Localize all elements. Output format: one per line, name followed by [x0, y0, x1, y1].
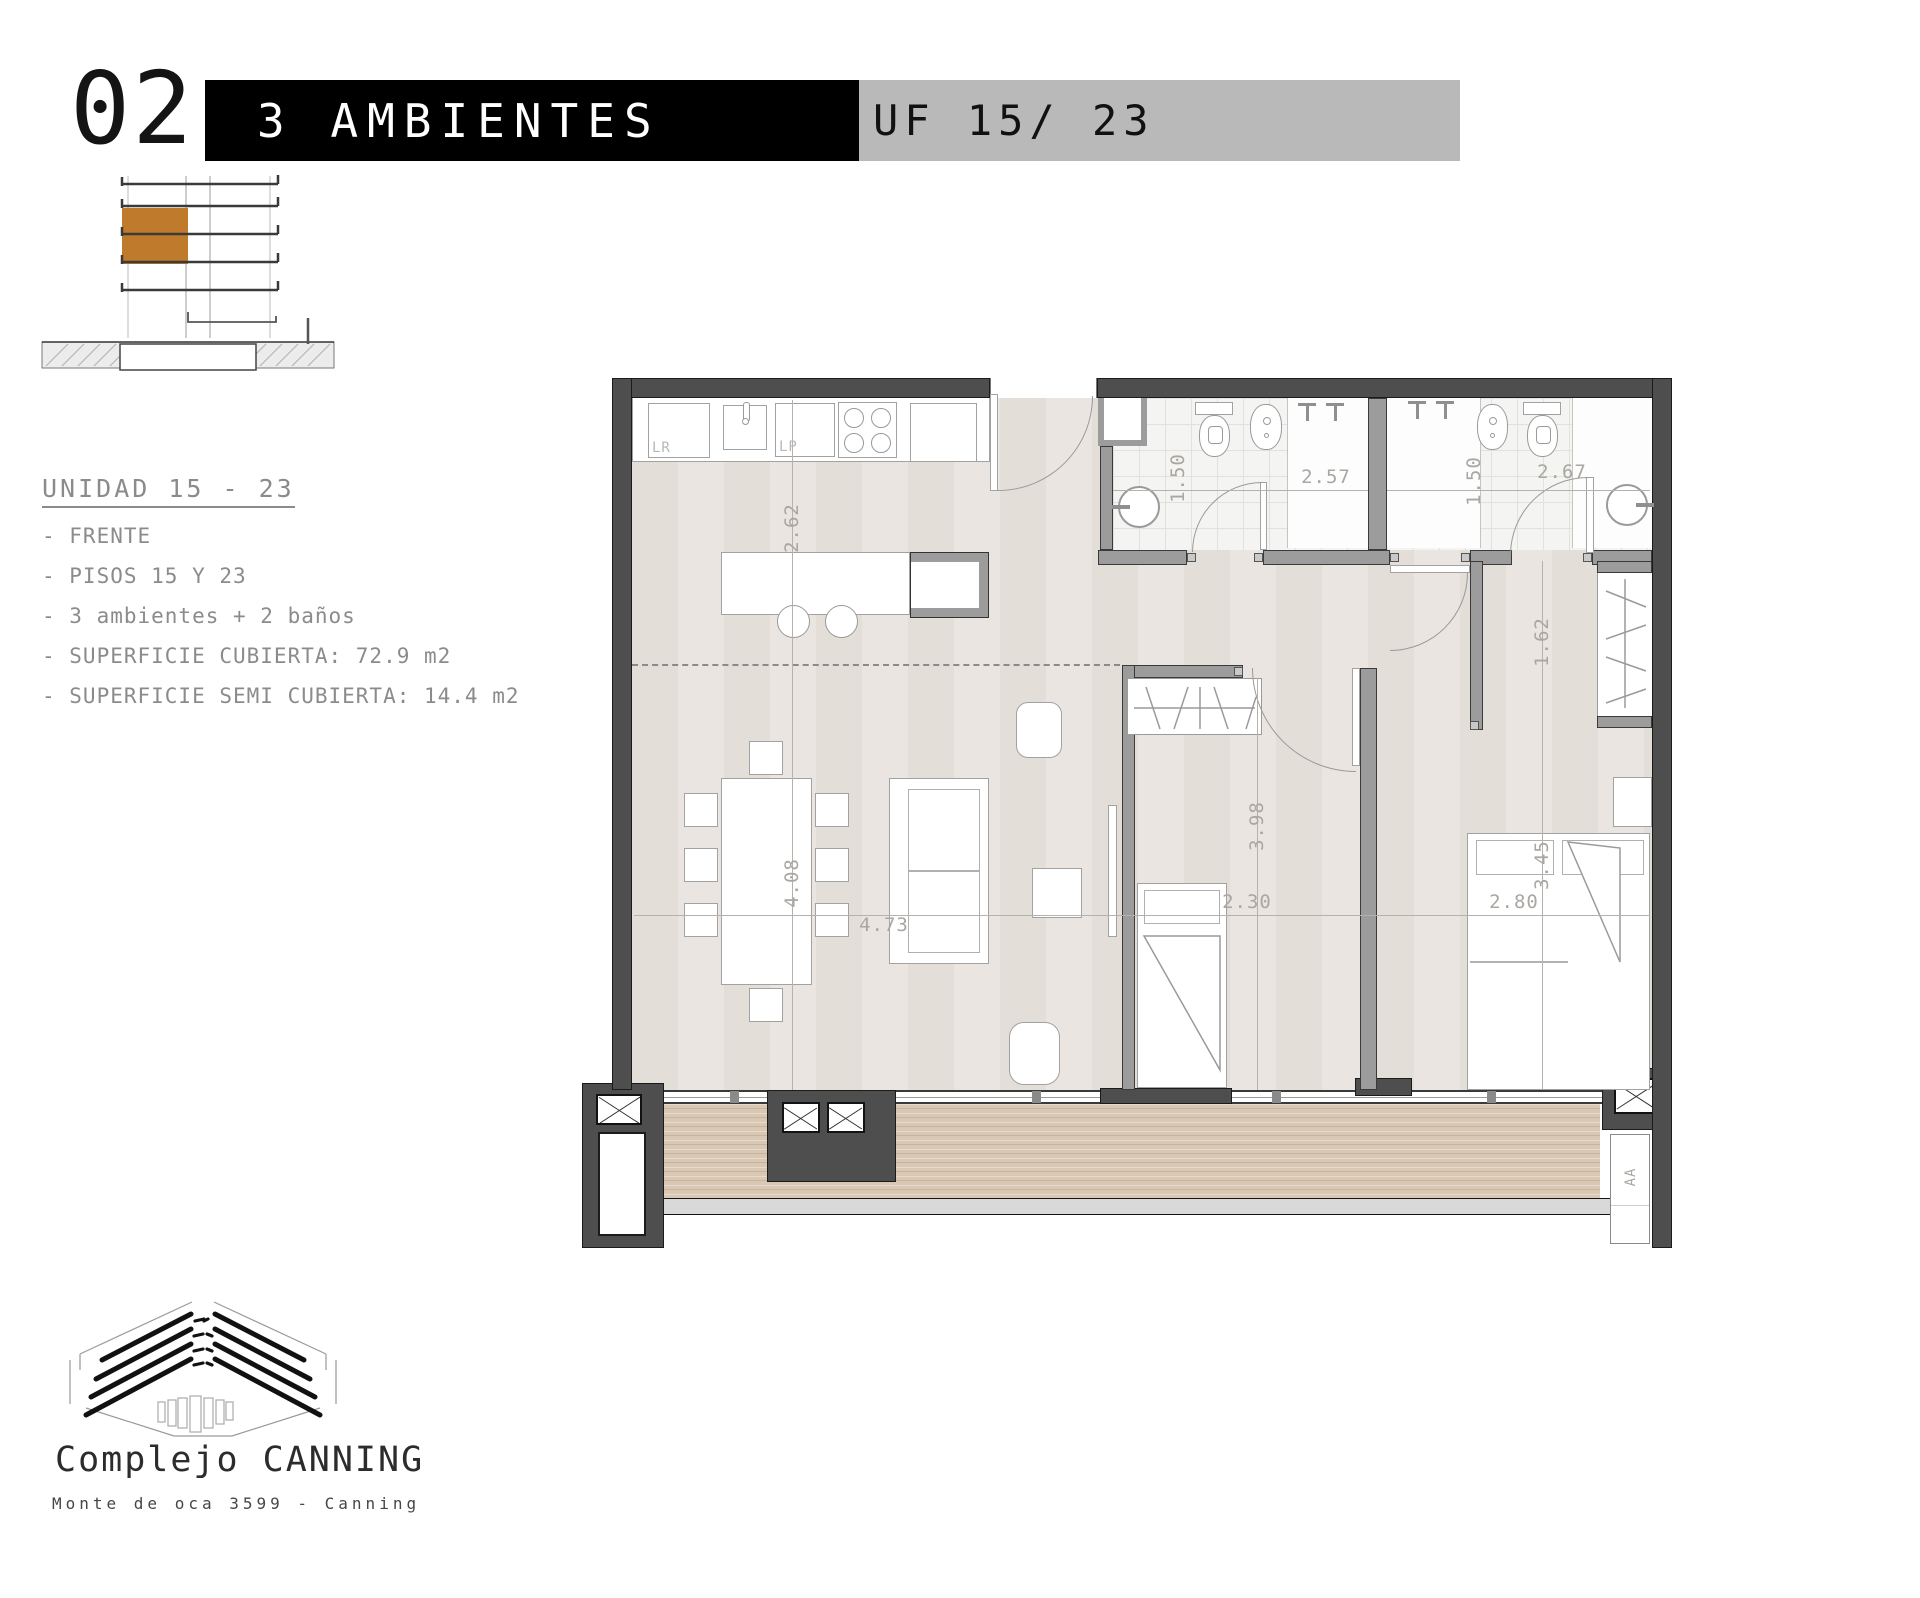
unit-info-line: - SUPERFICIE SEMI CUBIERTA: 14.4 m2 — [42, 684, 520, 708]
chair — [749, 988, 783, 1022]
window-mullion — [730, 1091, 739, 1103]
building-logo-icon — [42, 1290, 352, 1440]
dim-dressing-depth: 1.62 — [1531, 617, 1553, 667]
column-x-icon — [782, 1102, 820, 1133]
island-end-unit — [910, 552, 989, 618]
dim-bedroom2-length: 3.98 — [1246, 801, 1268, 851]
bath-divider-wall — [1368, 398, 1387, 550]
chair — [684, 793, 718, 827]
building-section-drawing — [40, 162, 340, 374]
dim-line-bath2 — [1387, 490, 1650, 491]
window-mullion — [1272, 1091, 1281, 1103]
bath-bottom-wall — [1263, 550, 1390, 565]
chair — [815, 793, 849, 827]
pool-section — [120, 344, 256, 370]
wall-cap — [1470, 721, 1479, 730]
wall-cap — [1234, 667, 1243, 676]
toilet-tank — [1195, 402, 1233, 415]
brand-name: Complejo CANNING — [55, 1440, 424, 1480]
unit-info-line: - PISOS 15 Y 23 — [42, 564, 520, 588]
dim-bath2-depth: 1.50 — [1463, 456, 1485, 506]
dim-line-bath1 — [1113, 490, 1368, 491]
nightstand — [1613, 777, 1652, 827]
toilet-tank — [1523, 402, 1561, 415]
category-bar: 3 AMBIENTES — [205, 80, 859, 161]
bidet — [1477, 404, 1508, 450]
dim-living-length: 4.08 — [781, 858, 803, 908]
building-section-diagram — [40, 162, 340, 374]
armchair — [1032, 868, 1082, 918]
stool — [825, 605, 858, 638]
chair — [684, 903, 718, 937]
wall-right — [1652, 378, 1672, 1248]
floor-plan: AA LR LP — [612, 378, 1672, 1258]
unit-info-line: - 3 ambientes + 2 baños — [42, 604, 520, 628]
coffee-table — [1016, 702, 1062, 758]
kitchen-sink — [723, 405, 767, 450]
wardrobe — [1597, 573, 1652, 716]
toilet — [1199, 415, 1230, 457]
sofa — [889, 778, 989, 964]
chair — [815, 848, 849, 882]
toilet — [1527, 415, 1558, 457]
double-bed — [1467, 833, 1650, 1090]
washer-label: LR — [652, 440, 671, 456]
wall-cap — [1390, 553, 1399, 562]
dim-bedroom1-width: 2.80 — [1489, 891, 1539, 913]
bath-bottom-wall — [1098, 550, 1187, 565]
category-title: 3 AMBIENTES — [205, 94, 661, 148]
dim-bath1-width: 2.57 — [1301, 466, 1351, 488]
unit-info-line: - FRENTE — [42, 524, 520, 548]
unit-info-line: - SUPERFICIE CUBIERTA: 72.9 m2 — [42, 644, 520, 668]
wall-cap — [1187, 553, 1196, 562]
unit-position-marker — [122, 208, 188, 264]
dim-living-width: 4.73 — [859, 914, 909, 936]
unit-info: UNIDAD 15 - 23 - FRENTE - PISOS 15 Y 23 … — [42, 474, 520, 708]
column-x-icon — [596, 1094, 642, 1125]
kitchen-island — [721, 552, 910, 615]
unit-bar: UF 15/ 23 — [859, 80, 1460, 161]
dim-kitchen-depth: 2.62 — [781, 503, 803, 553]
wall-top-right — [1097, 378, 1672, 398]
window-mullion — [1487, 1091, 1496, 1103]
dishwasher-label: LP — [779, 439, 798, 455]
bidet — [1250, 404, 1282, 450]
tv-panel — [1108, 805, 1117, 937]
wall-cap — [1461, 553, 1470, 562]
round-sink — [1118, 486, 1160, 528]
stove — [838, 402, 897, 458]
washing-machine: LR — [648, 403, 710, 458]
pouf — [1009, 1022, 1060, 1085]
planter-left — [598, 1132, 646, 1236]
sliding-door-frame — [1100, 1088, 1232, 1104]
entry-opening — [990, 378, 1097, 398]
unit-info-title: UNIDAD 15 - 23 — [42, 474, 295, 508]
single-bed — [1137, 883, 1227, 1088]
dishwasher: LP — [775, 403, 835, 457]
chair — [815, 903, 849, 937]
entry-door-leaf — [990, 394, 998, 491]
wall-cap — [1254, 553, 1263, 562]
bath1-left-wall — [1100, 446, 1113, 550]
projection-line — [632, 664, 1120, 666]
wall-top-left — [612, 378, 990, 398]
dim-bath1-depth: 1.50 — [1167, 453, 1189, 503]
dim-line-horizontal — [634, 915, 1650, 916]
dressing-wall — [1470, 561, 1483, 730]
dim-line-bedroom2 — [1257, 678, 1258, 1090]
duct-niche — [1098, 398, 1147, 446]
brand-address: Monte de oca 3599 - Canning — [52, 1494, 420, 1513]
stool — [777, 605, 810, 638]
ac-label: AA — [1623, 1168, 1639, 1187]
balcony-edge — [582, 1198, 1622, 1215]
bedroom2-top-wall — [1122, 665, 1243, 678]
window-mullion — [1032, 1091, 1041, 1103]
dressing-door-leaf — [1390, 565, 1470, 573]
chair — [684, 848, 718, 882]
unit-label: UF 15/ 23 — [859, 96, 1155, 145]
dim-bath2-width: 2.67 — [1537, 461, 1587, 483]
ac-unit: AA — [1610, 1134, 1650, 1244]
fridge — [910, 403, 977, 462]
brand-logo — [42, 1290, 352, 1440]
bedroom-divider-wall — [1360, 668, 1377, 1090]
dim-bedroom2-width: 2.30 — [1222, 891, 1272, 913]
wardrobe-cap — [1597, 561, 1652, 573]
wall-left — [612, 378, 632, 1090]
dim-bedroom1-length: 3.45 — [1531, 840, 1553, 890]
chair — [749, 741, 783, 775]
wardrobe-cap — [1597, 716, 1652, 728]
column-x-icon — [827, 1102, 865, 1133]
closet — [1127, 678, 1262, 735]
